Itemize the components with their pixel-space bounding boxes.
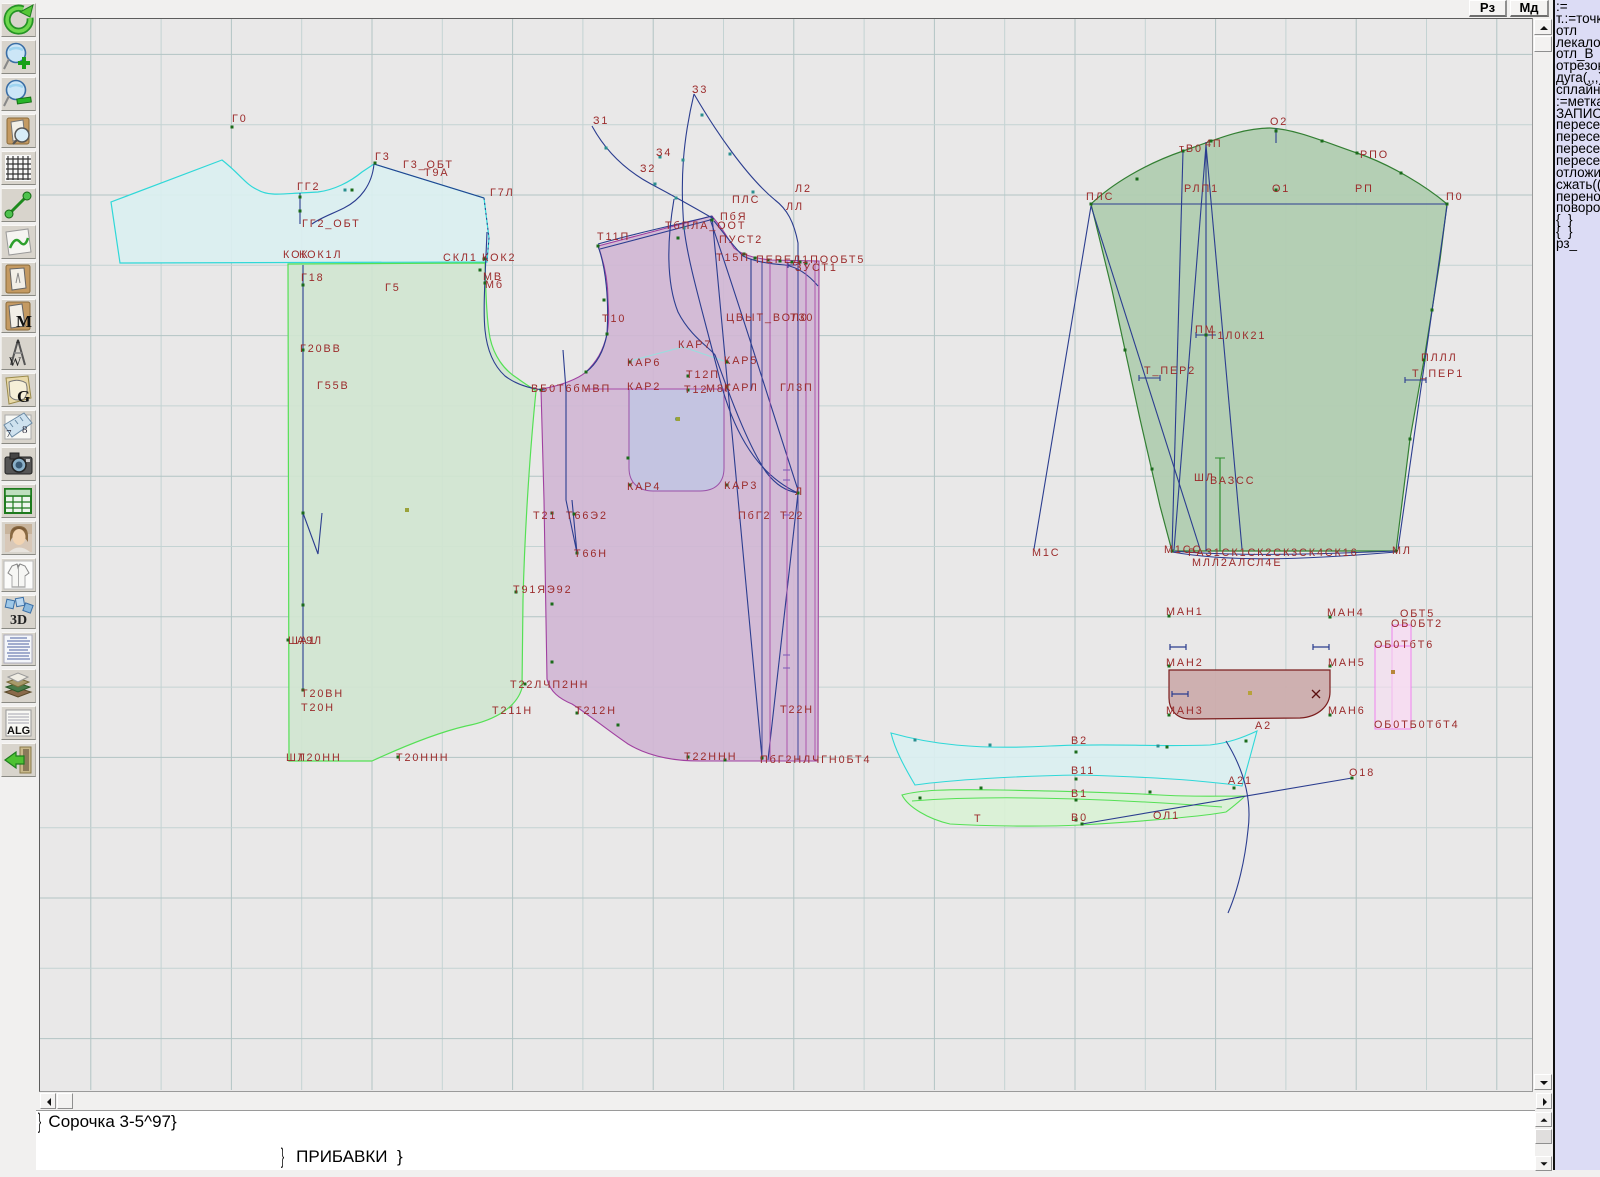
svg-text:Т12: Т12	[684, 384, 708, 396]
svg-text:ГГ2_ОБТ: ГГ2_ОБТ	[302, 218, 361, 230]
svg-text:ПбЯ: ПбЯ	[720, 211, 747, 223]
svg-text:Г7Л: Г7Л	[490, 187, 515, 199]
svg-text:Г5: Г5	[385, 282, 401, 294]
svg-text:З4: З4	[656, 147, 672, 159]
svg-text:Т1Л0К21: Т1Л0К21	[1209, 330, 1266, 342]
svg-text:Т_ПЕР2: Т_ПЕР2	[1144, 365, 1196, 377]
svg-text:Т21: Т21	[533, 510, 557, 522]
svg-text:РПО: РПО	[1360, 149, 1389, 161]
svg-text:ОБ0БТ2: ОБ0БТ2	[1391, 618, 1443, 630]
svg-text:М1С: М1С	[1032, 547, 1061, 559]
svg-text:МАН1: МАН1	[1166, 606, 1204, 618]
svg-text:МАН2: МАН2	[1166, 657, 1204, 669]
svg-text:Т20ННН: Т20ННН	[396, 752, 449, 764]
svg-text:ПбГ2НЛЧГН0БТ4: ПбГ2НЛЧГН0БТ4	[760, 754, 871, 766]
svg-text:Т9А: Т9А	[424, 167, 450, 179]
svg-text:КАР5: КАР5	[724, 355, 758, 367]
svg-text:ЛЛ: ЛЛ	[786, 201, 804, 213]
svg-text:З3: З3	[692, 84, 708, 96]
svg-text:КОК1Л: КОК1Л	[299, 249, 342, 261]
svg-text:МАН4: МАН4	[1327, 607, 1365, 619]
svg-text:ОБ0ТбТ6: ОБ0ТбТ6	[1374, 639, 1434, 651]
svg-text:ПЛС: ПЛС	[1086, 191, 1114, 203]
svg-text:Т12П: Т12П	[686, 369, 720, 381]
svg-text:ВБ0Т6бМВП: ВБ0Т6бМВП	[531, 383, 611, 395]
svg-text:Т20НН: Т20НН	[298, 752, 342, 764]
svg-text:В1: В1	[1071, 788, 1088, 800]
svg-text:В0: В0	[1071, 812, 1088, 824]
svg-text:Г3: Г3	[375, 151, 391, 163]
svg-text:3D: 3D	[10, 613, 27, 628]
svg-text:СКЛ1: СКЛ1	[443, 252, 478, 264]
svg-text:ГЛ3П: ГЛ3П	[780, 382, 814, 394]
svg-text:Т212Н: Т212Н	[575, 705, 617, 717]
svg-text:КОК2: КОК2	[482, 252, 516, 264]
svg-text:Т30: Т30	[790, 312, 814, 324]
svg-text:7: 7	[6, 428, 12, 440]
svg-text:Т66Н: Т66Н	[574, 548, 608, 560]
svg-text:А21: А21	[1228, 775, 1253, 787]
svg-text:ПбГ2: ПбГ2	[738, 510, 771, 522]
svg-text:Л: Л	[795, 486, 804, 498]
svg-text:Г20ВВ: Г20ВВ	[300, 343, 342, 355]
svg-text:ПЛС: ПЛС	[732, 194, 760, 206]
svg-text:Т20ВН: Т20ВН	[301, 688, 344, 700]
svg-text:ОЛ1: ОЛ1	[1153, 810, 1180, 822]
svg-text:Т211Н: Т211Н	[492, 705, 533, 717]
svg-text:ОБ0ТБ0ТбТ4: ОБ0ТБ0ТбТ4	[1374, 719, 1460, 731]
svg-text:МАН5: МАН5	[1328, 657, 1366, 669]
svg-text:МАН6: МАН6	[1328, 705, 1366, 717]
svg-text:Мб: Мб	[485, 279, 504, 291]
svg-text:Т22ННН: Т22ННН	[684, 751, 737, 763]
svg-text:КАР7: КАР7	[678, 339, 712, 351]
svg-text:M: M	[16, 312, 32, 331]
svg-text:МЛ: МЛ	[1392, 545, 1412, 557]
svg-text:КАРЛ: КАРЛ	[724, 382, 759, 394]
svg-text:З2: З2	[640, 163, 656, 175]
svg-text:Г55В: Г55В	[317, 380, 350, 392]
svg-text:4П: 4П	[1205, 138, 1223, 150]
svg-text:ПУСТ2: ПУСТ2	[719, 234, 763, 246]
svg-text:Т10: Т10	[602, 313, 626, 325]
svg-text:КАР4: КАР4	[627, 481, 661, 493]
svg-text:А2: А2	[1255, 720, 1272, 732]
svg-text:Г18: Г18	[301, 272, 325, 284]
svg-text:8: 8	[22, 424, 28, 436]
svg-text:Т22: Т22	[780, 510, 804, 522]
svg-text:Т: Т	[974, 813, 983, 825]
svg-text:КАР6: КАР6	[627, 357, 661, 369]
svg-text:Г0: Г0	[232, 113, 248, 125]
svg-text:ГГ2: ГГ2	[297, 181, 320, 193]
svg-text:ПЛЛЛ: ПЛЛЛ	[1421, 352, 1458, 364]
svg-text:Т_ПЕР1: Т_ПЕР1	[1412, 368, 1464, 380]
svg-text:Т91ЯЭ92: Т91ЯЭ92	[513, 584, 572, 596]
svg-text:Т22ЛЧП2НН: Т22ЛЧП2НН	[510, 679, 589, 691]
svg-text:Т22Н: Т22Н	[780, 704, 814, 716]
svg-text:О18: О18	[1349, 767, 1375, 779]
svg-text:Л2: Л2	[795, 183, 812, 195]
svg-text:РП: РП	[1355, 183, 1374, 195]
svg-text:КАР3: КАР3	[724, 480, 758, 492]
svg-text:Т20Н: Т20Н	[301, 702, 335, 714]
svg-text:П0: П0	[1446, 191, 1464, 203]
svg-text:О1: О1	[1272, 183, 1290, 195]
svg-text:ВАЗСС: ВАЗСС	[1210, 475, 1255, 487]
svg-text:Т15П: Т15П	[716, 252, 750, 264]
svg-text:ALG: ALG	[7, 725, 30, 737]
svg-text:тВ0: тВ0	[1179, 143, 1203, 155]
svg-text:Т11П: Т11П	[597, 231, 630, 243]
svg-text:W: W	[9, 354, 22, 369]
svg-text:МАН3: МАН3	[1166, 705, 1204, 717]
svg-text:В2: В2	[1071, 735, 1088, 747]
svg-text:О2: О2	[1270, 116, 1288, 128]
svg-text:G: G	[17, 387, 30, 406]
svg-text:З1: З1	[593, 115, 609, 127]
svg-text:РЛП1: РЛП1	[1184, 183, 1219, 195]
svg-text:ЗУСТ1: ЗУСТ1	[795, 262, 838, 274]
svg-text:КАР2: КАР2	[627, 381, 661, 393]
svg-text:Т66Э2: Т66Э2	[566, 510, 608, 522]
svg-text:В11: В11	[1071, 765, 1095, 777]
svg-text:МЛЛ2АЛСЛ4Е: МЛЛ2АЛСЛ4Е	[1192, 557, 1282, 569]
svg-text:А9Л: А9Л	[297, 635, 323, 647]
